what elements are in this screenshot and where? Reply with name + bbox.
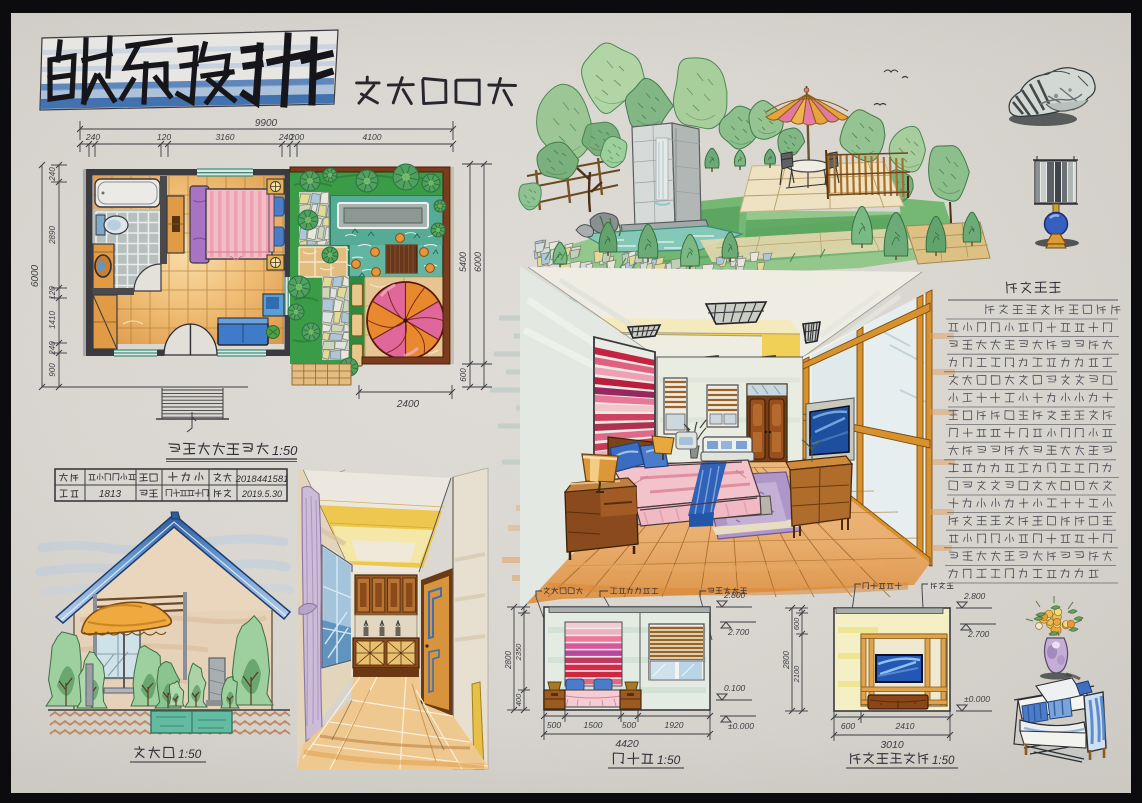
svg-text:240: 240 — [48, 167, 57, 182]
svg-text:2.800: 2.800 — [723, 590, 746, 600]
svg-text:±0.000: ±0.000 — [964, 694, 990, 704]
svg-text:1:50: 1:50 — [657, 753, 681, 767]
svg-text:2019.5.30: 2019.5.30 — [241, 489, 282, 499]
svg-text:3160: 3160 — [216, 132, 235, 142]
svg-text:240: 240 — [85, 132, 100, 142]
svg-text:4100: 4100 — [363, 132, 382, 142]
svg-text:400: 400 — [514, 693, 523, 706]
svg-text:120: 120 — [157, 132, 171, 142]
svg-text:2350: 2350 — [514, 643, 523, 662]
svg-text:1:50: 1:50 — [178, 747, 202, 761]
svg-text:1500: 1500 — [584, 720, 603, 730]
svg-text:±0.000: ±0.000 — [728, 721, 754, 731]
svg-text:2018441581: 2018441581 — [235, 474, 289, 485]
svg-text:900: 900 — [48, 363, 57, 377]
svg-text:0.100: 0.100 — [724, 683, 746, 693]
svg-text:5400: 5400 — [458, 252, 468, 272]
svg-text:6000: 6000 — [30, 264, 41, 287]
svg-text:2.700: 2.700 — [727, 627, 750, 637]
svg-text:4420: 4420 — [615, 738, 639, 750]
svg-text:2410: 2410 — [895, 721, 915, 731]
svg-text:1410: 1410 — [48, 311, 57, 329]
svg-text:9900: 9900 — [255, 118, 278, 129]
svg-text:2400: 2400 — [396, 399, 420, 410]
svg-text:600: 600 — [792, 617, 801, 630]
svg-text:2.800: 2.800 — [963, 591, 986, 601]
svg-text:3010: 3010 — [880, 739, 904, 751]
svg-text:1:50: 1:50 — [272, 443, 298, 458]
svg-text:600: 600 — [459, 368, 468, 382]
svg-text:120: 120 — [48, 286, 57, 300]
svg-text:2800: 2800 — [782, 651, 791, 670]
svg-text:6000: 6000 — [473, 252, 483, 272]
svg-text:500: 500 — [622, 720, 636, 730]
svg-text:2800: 2800 — [504, 651, 513, 670]
svg-text:2100: 2100 — [792, 665, 801, 684]
svg-text:600: 600 — [841, 721, 855, 731]
svg-text:500: 500 — [547, 720, 561, 730]
svg-text:1920: 1920 — [665, 720, 684, 730]
svg-text:1:50: 1:50 — [932, 755, 955, 767]
svg-text:2.700: 2.700 — [967, 629, 990, 639]
svg-text:2890: 2890 — [48, 226, 57, 245]
svg-text:240: 240 — [48, 341, 57, 356]
svg-text:200: 200 — [289, 132, 304, 142]
svg-text:1813: 1813 — [99, 489, 122, 500]
